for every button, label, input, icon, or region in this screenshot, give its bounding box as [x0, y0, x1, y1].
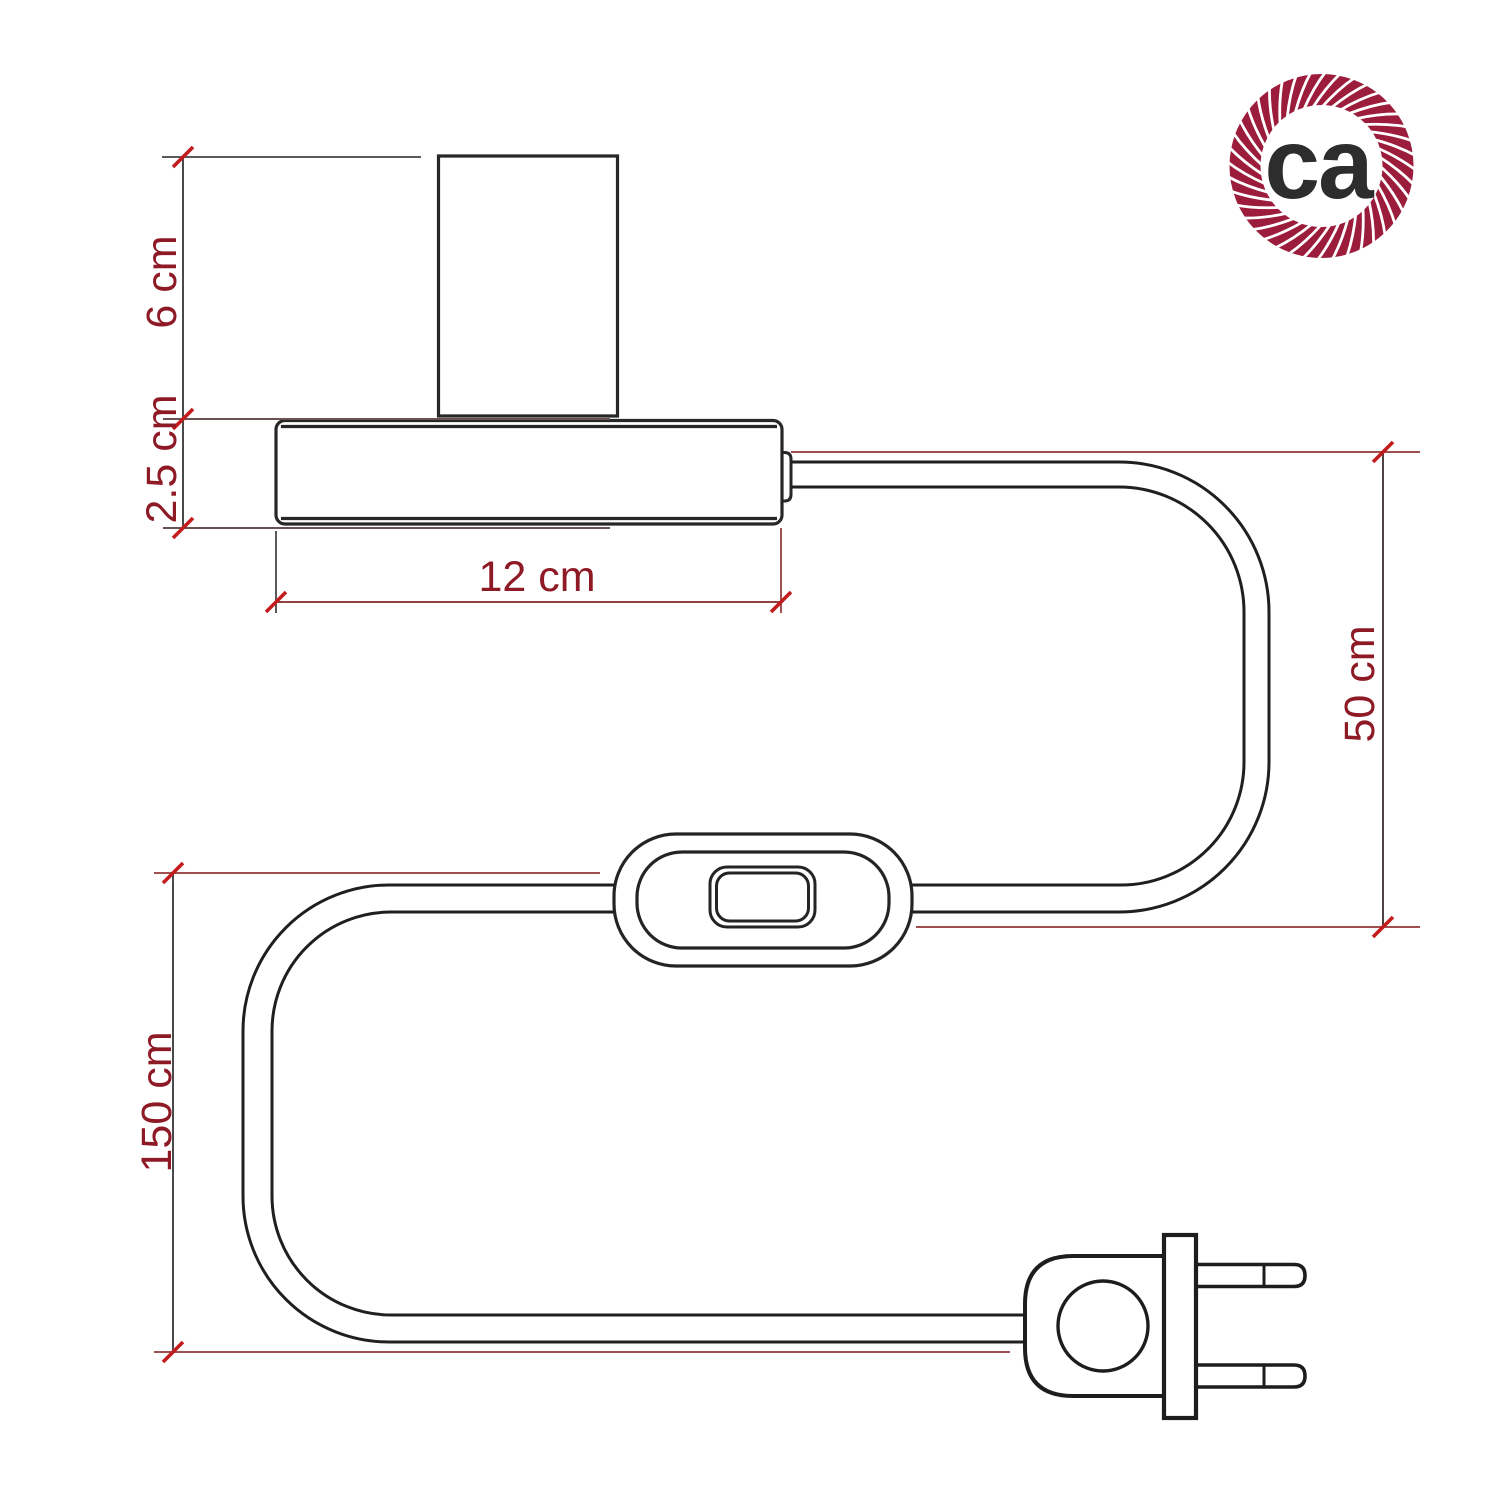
- svg-text:ca: ca: [1264, 108, 1375, 220]
- svg-text:50 cm: 50 cm: [1336, 625, 1384, 742]
- svg-text:150 cm: 150 cm: [133, 1031, 181, 1172]
- svg-text:12 cm: 12 cm: [478, 553, 595, 601]
- svg-text:2.5 cm: 2.5 cm: [138, 394, 186, 523]
- svg-text:6 cm: 6 cm: [138, 235, 186, 328]
